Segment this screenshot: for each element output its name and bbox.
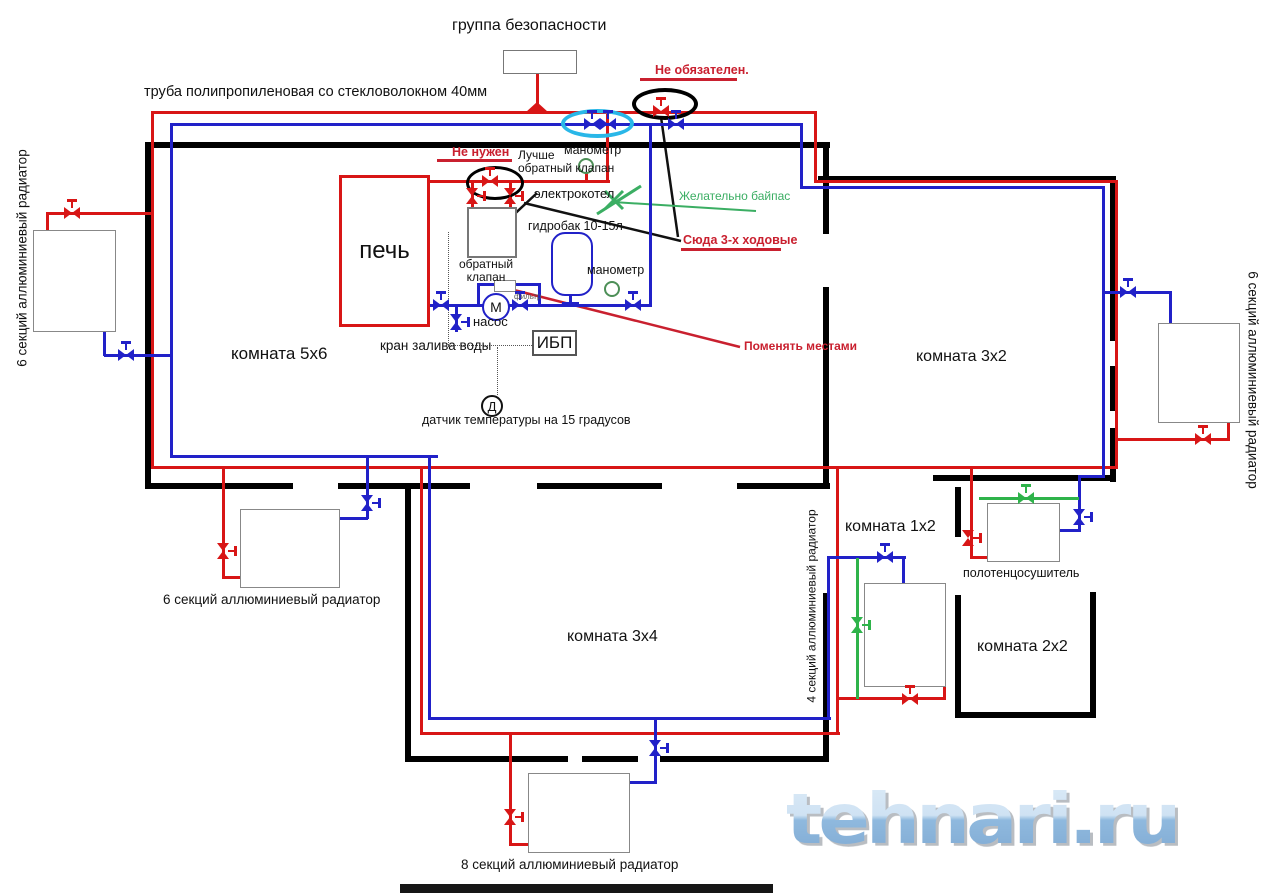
valve-icon-blue [1073, 509, 1085, 525]
valve-wedge [633, 299, 641, 311]
valve-wedge [1073, 517, 1085, 525]
valve-icon-blue [361, 495, 373, 511]
pipe-blue [428, 717, 831, 720]
pipe-red [151, 111, 154, 469]
safety-group-box [503, 50, 577, 74]
label-tank: гидробак 10-15л [528, 219, 623, 233]
valve-handle [591, 112, 593, 119]
valve-wedge [851, 625, 863, 633]
valve-wedge [1195, 433, 1203, 445]
pipe-red [814, 111, 817, 182]
wall-segment [145, 483, 293, 489]
pipe-blue [827, 556, 906, 559]
wall-segment [338, 483, 470, 489]
valve-handle [71, 201, 73, 208]
valve-icon-blue [118, 349, 134, 361]
pipe-red [420, 468, 423, 735]
valve-icon-red [653, 105, 669, 117]
valve-wedge [1026, 492, 1034, 504]
dotted-connector [448, 232, 449, 347]
wall-segment [1090, 592, 1096, 718]
valve-handle [1127, 280, 1129, 287]
pipe-red [47, 212, 153, 215]
pipe-blue [800, 123, 803, 189]
pipe-pump-line [430, 304, 652, 307]
valve-wedge [962, 538, 974, 546]
label-filter: фильтр [514, 293, 541, 302]
label-radiator-8sec: 8 секций аллюминиевый радиатор [461, 857, 678, 872]
valve-wedge [450, 322, 462, 330]
valve-icon-red [64, 207, 80, 219]
valve-handle [379, 498, 382, 508]
valve-wedge [910, 693, 918, 705]
radiator-box-4sec [864, 583, 946, 687]
label-towel: полотенцосушитель [963, 566, 1079, 580]
pipe-blue [170, 455, 438, 458]
valve-handle [660, 99, 662, 106]
valve-wedge [653, 105, 661, 117]
valve-icon-red [217, 543, 229, 559]
wall-segment [955, 712, 1095, 718]
valve-handle [628, 291, 638, 294]
valve-wedge [441, 299, 449, 311]
valve-wedge [466, 196, 478, 204]
pipe-blue [902, 556, 905, 585]
valve-icon-blue [877, 551, 893, 563]
bottom-bar [400, 884, 773, 893]
label-gauge-1: манометр [564, 143, 621, 157]
pipe-blue [340, 517, 368, 520]
valve-icon-green [1018, 492, 1034, 504]
pipe-red [222, 576, 242, 579]
radiator-box-8sec [528, 773, 630, 853]
valve-handle [1123, 278, 1133, 281]
valve-handle [880, 543, 890, 546]
watermark-logo: tehnari.ru [786, 778, 1177, 860]
valve-icon-green [851, 617, 863, 633]
furnace-box: печь [339, 175, 430, 327]
valve-handle [607, 112, 609, 119]
label-room-3x2: комната 3х2 [916, 348, 1007, 366]
valve-icon-red [482, 175, 498, 187]
valve-icon-red [962, 530, 974, 546]
valve-wedge [490, 175, 498, 187]
valve-wedge [126, 349, 134, 361]
valve-wedge [600, 118, 608, 130]
valve-icon-blue [668, 118, 684, 130]
label-room-3x4: комната 3х4 [567, 628, 658, 646]
valve-handle [436, 291, 446, 294]
valve-handle [489, 169, 491, 176]
valve-wedge [649, 748, 661, 756]
label-bypass: Желательно байпас [679, 190, 790, 203]
valve-handle [667, 743, 670, 753]
valve-wedge [1120, 286, 1128, 298]
valve-handle [1025, 486, 1027, 493]
valve-handle [1198, 425, 1208, 428]
valve-handle [484, 191, 487, 201]
valve-icon-red [504, 809, 516, 825]
pipe-blue [800, 186, 1105, 189]
pipe-red [420, 732, 840, 735]
valve-wedge [902, 693, 910, 705]
towel-dryer-box [987, 503, 1060, 562]
valve-handle [884, 545, 886, 552]
valve-handle [905, 685, 915, 688]
valve-wedge [584, 118, 592, 130]
label-title: группа безопасности [452, 17, 606, 35]
valve-wedge [72, 207, 80, 219]
valve-wedge [877, 551, 885, 563]
valve-handle [909, 687, 911, 694]
label-radiator-left: 6 секций аллюминиевый радиатор [14, 149, 29, 366]
valve-wedge [668, 118, 676, 130]
pipe-blue [649, 124, 652, 306]
pipe-blue [170, 123, 173, 458]
pipe-red [1227, 423, 1230, 441]
valve-icon-red [466, 188, 478, 204]
pipe-red [836, 697, 946, 700]
valve-wedge [1018, 492, 1026, 504]
wall-segment [823, 287, 829, 487]
label-check-valve: обратный клапан [455, 258, 517, 285]
pipe-red [46, 212, 49, 232]
valve-handle [632, 293, 634, 300]
valve-icon-blue [600, 118, 616, 130]
pipe-red [509, 734, 512, 845]
valve-handle [675, 112, 677, 119]
valve-handle [656, 97, 666, 100]
valve-handle [440, 293, 442, 300]
pipe-blue [104, 354, 172, 357]
wall-segment [660, 756, 829, 762]
valve-wedge [433, 299, 441, 311]
valve-handle [980, 533, 983, 543]
valve-handle [468, 317, 471, 327]
valve-handle [125, 343, 127, 350]
radiator-box-right [1158, 323, 1240, 423]
label-swap: Поменять местами [744, 340, 857, 353]
valve-icon-blue [649, 740, 661, 756]
valve-wedge [361, 503, 373, 511]
label-radiator-bottom-left: 6 секций аллюминиевый радиатор [163, 592, 380, 607]
pipe-blue [630, 781, 657, 784]
valve-wedge [1203, 433, 1211, 445]
valve-wedge [504, 196, 516, 204]
pointer-lines-overlay [0, 0, 1280, 893]
label-not-required: Не обязателен. [655, 63, 749, 77]
pipe-blue [428, 455, 431, 720]
pipe-blue [1102, 186, 1105, 478]
pipe-red [536, 74, 539, 104]
valve-handle [1091, 512, 1094, 522]
label-room-2x2: комната 2х2 [977, 638, 1068, 656]
radiator-box-bottom-left [240, 509, 340, 588]
valve-handle [671, 110, 681, 113]
label-not-needed: Не нужен [452, 145, 509, 159]
label-room-5x6: комната 5х6 [231, 344, 327, 363]
valve-wedge [1128, 286, 1136, 298]
valve-handle [603, 110, 613, 113]
valve-wedge [625, 299, 633, 311]
label-sensor: датчик температуры на 15 градусов [422, 413, 631, 427]
underline-not-needed [437, 159, 512, 162]
gauge-circle-mid [604, 281, 620, 297]
valve-icon-blue [625, 299, 641, 311]
underline-not-required [640, 78, 737, 81]
valve-handle [522, 812, 525, 822]
radiator-box-left [33, 230, 116, 332]
valve-icon-red [902, 693, 918, 705]
pipe-blue [1080, 475, 1105, 478]
wall-segment [955, 487, 961, 537]
label-radiator-4sec: 4 секций аллюминиевый радиатор [805, 509, 818, 702]
pipe-blue [1169, 291, 1172, 324]
pipe-red [222, 468, 225, 578]
wall-segment [405, 756, 568, 762]
valve-handle [485, 167, 495, 170]
wall-segment [955, 595, 961, 715]
valve-handle [67, 199, 77, 202]
label-radiator-right: 6 секций аллюминиевый радиатор [1245, 271, 1260, 488]
pipe-red [836, 468, 839, 735]
pipe-red [814, 180, 1118, 183]
electric-boiler-box [467, 207, 517, 258]
label-pipe-type: труба полипропиленовая со стекловолокном… [144, 84, 487, 100]
pipe-red [943, 686, 946, 700]
valve-handle [121, 341, 131, 344]
valve-wedge [676, 118, 684, 130]
label-3way: Сюда 3-х ходовые [683, 233, 797, 247]
pipe-blue [477, 284, 480, 306]
heating-scheme-diagram: tehnari.ru печьИБПМДгруппа безопасностит… [0, 0, 1280, 893]
valve-wedge [64, 207, 72, 219]
valve-wedge [608, 118, 616, 130]
valve-wedge [217, 551, 229, 559]
valve-wedge [592, 118, 600, 130]
valve-icon-blue [584, 118, 600, 130]
valve-wedge [118, 349, 126, 361]
underline-3way [681, 248, 781, 251]
label-pump: насос [473, 315, 508, 330]
pipe-red-top-main [152, 111, 816, 114]
ups-box: ИБП [532, 330, 577, 356]
valve-handle [869, 620, 872, 630]
valve-wedge [504, 817, 516, 825]
valve-handle [1202, 427, 1204, 434]
label-boiler: электрокотел [534, 187, 614, 202]
pipe-red [1115, 180, 1118, 469]
valve-icon-blue [1120, 286, 1136, 298]
valve-handle [235, 546, 238, 556]
wall-segment [582, 756, 638, 762]
pipe-red [1118, 438, 1230, 441]
pipe-blue [1103, 291, 1172, 294]
valve-wedge [482, 175, 490, 187]
pipe-blue [1059, 529, 1081, 532]
pipe-blue-top-main [171, 123, 803, 126]
valve-icon-red [504, 188, 516, 204]
dotted-connector [497, 347, 498, 395]
valve-icon-blue [433, 299, 449, 311]
valve-icon-red [1195, 433, 1211, 445]
pointer-3way-top [661, 117, 678, 237]
pipe-blue [562, 302, 579, 306]
valve-handle [522, 191, 525, 201]
label-room-1x2: комната 1х2 [845, 518, 936, 536]
pipe-blue [827, 556, 830, 719]
pipe-blue [103, 332, 106, 356]
label-fill-valve: кран залива воды [380, 338, 491, 353]
wall-segment [537, 483, 662, 489]
label-gauge-2: манометр [587, 263, 644, 277]
valve-icon-blue [450, 314, 462, 330]
valve-wedge [885, 551, 893, 563]
wall-segment [737, 483, 830, 489]
valve-handle [1021, 484, 1031, 487]
valve-wedge [661, 105, 669, 117]
valve-handle [587, 110, 597, 113]
wall-segment [405, 487, 411, 759]
